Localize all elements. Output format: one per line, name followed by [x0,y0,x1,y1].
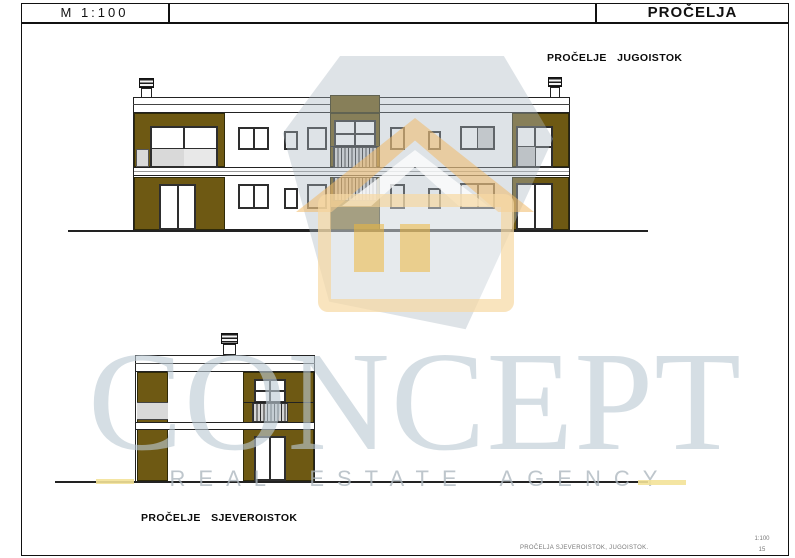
footer-sheet-name: PROČELJA SJEVEROISTOK, JUGOISTOK. [520,545,648,551]
page-border [21,3,789,556]
sheet-title: PROČELJA [648,4,738,21]
sheet-title-cell: PROČELJA [596,3,789,22]
title-block-divider [168,3,170,24]
scale-label: M 1:100 [61,5,129,20]
drawing-sheet: M 1:100 PROČELJA [0,0,795,558]
facade-label-northeast: PROČELJE SJEVEROISTOK [141,512,297,524]
facade-label-southeast: PROČELJE JUGOISTOK [547,52,682,64]
title-block: M 1:100 PROČELJA [21,3,789,24]
footer-scale-block: 1:100 15 [744,536,780,553]
scale-cell: M 1:100 [21,3,168,22]
footer-scale: 1:100 [744,536,780,542]
footer-page-number: 15 [744,547,780,553]
